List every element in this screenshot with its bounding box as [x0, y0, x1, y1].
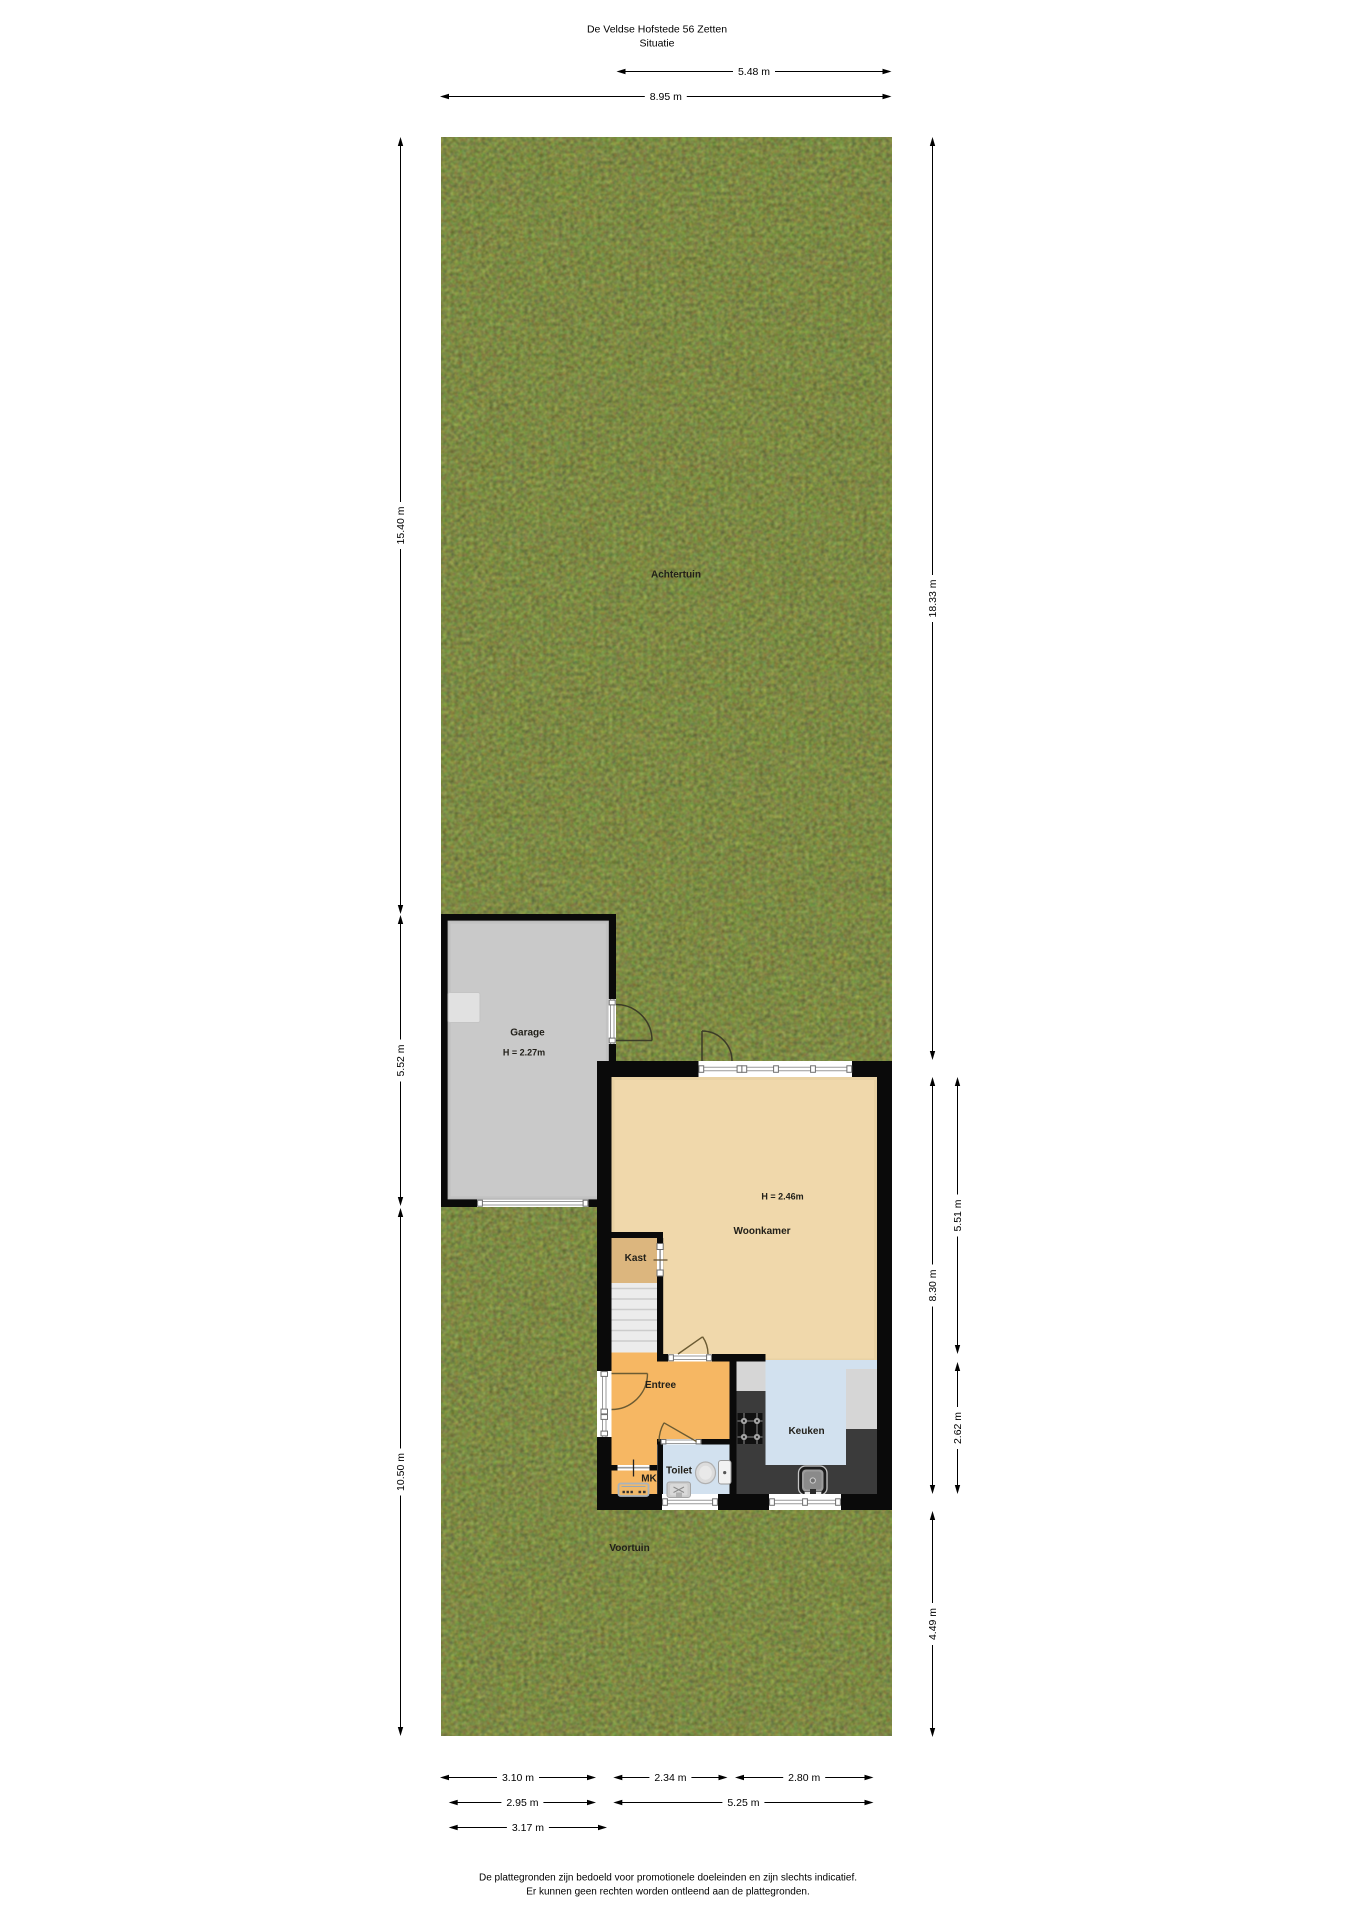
svg-text:De Veldse Hofstede 56 Zetten: De Veldse Hofstede 56 Zetten: [587, 24, 727, 36]
svg-text:Woonkamer: Woonkamer: [733, 1226, 790, 1237]
svg-text:H = 2.46m: H = 2.46m: [761, 1192, 803, 1202]
svg-text:H = 2.27m: H = 2.27m: [503, 1048, 545, 1058]
svg-text:5.52 m: 5.52 m: [395, 1044, 407, 1076]
svg-text:2.34 m: 2.34 m: [654, 1772, 686, 1784]
svg-text:Entree: Entree: [645, 1380, 677, 1391]
svg-text:5.25 m: 5.25 m: [727, 1797, 759, 1809]
svg-text:4.49 m: 4.49 m: [927, 1608, 939, 1640]
svg-text:MK: MK: [641, 1474, 657, 1485]
svg-text:10.50 m: 10.50 m: [395, 1453, 407, 1491]
svg-text:Kast: Kast: [625, 1253, 647, 1264]
svg-text:Er kunnen geen rechten worden: Er kunnen geen rechten worden ontleend a…: [526, 1887, 810, 1898]
svg-text:2.95 m: 2.95 m: [506, 1797, 538, 1809]
svg-text:2.80 m: 2.80 m: [788, 1772, 820, 1784]
svg-text:2.62 m: 2.62 m: [952, 1412, 964, 1444]
svg-text:Voortuin: Voortuin: [609, 1543, 649, 1554]
svg-text:Toilet: Toilet: [666, 1466, 693, 1477]
svg-text:Keuken: Keuken: [788, 1426, 824, 1437]
svg-text:Situatie: Situatie: [639, 38, 674, 50]
svg-text:3.17 m: 3.17 m: [512, 1822, 544, 1834]
svg-text:15.40 m: 15.40 m: [395, 506, 407, 544]
svg-text:5.48 m: 5.48 m: [738, 66, 770, 78]
svg-text:8.30 m: 8.30 m: [927, 1269, 939, 1301]
svg-text:8.95 m: 8.95 m: [650, 91, 682, 103]
svg-text:5.51 m: 5.51 m: [952, 1199, 964, 1231]
svg-text:Garage: Garage: [510, 1028, 545, 1039]
svg-text:3.10 m: 3.10 m: [502, 1772, 534, 1784]
svg-text:Achtertuin: Achtertuin: [651, 570, 701, 581]
svg-text:18.33 m: 18.33 m: [927, 579, 939, 617]
svg-text:De plattegronden zijn bedoeld: De plattegronden zijn bedoeld voor promo…: [479, 1873, 857, 1884]
